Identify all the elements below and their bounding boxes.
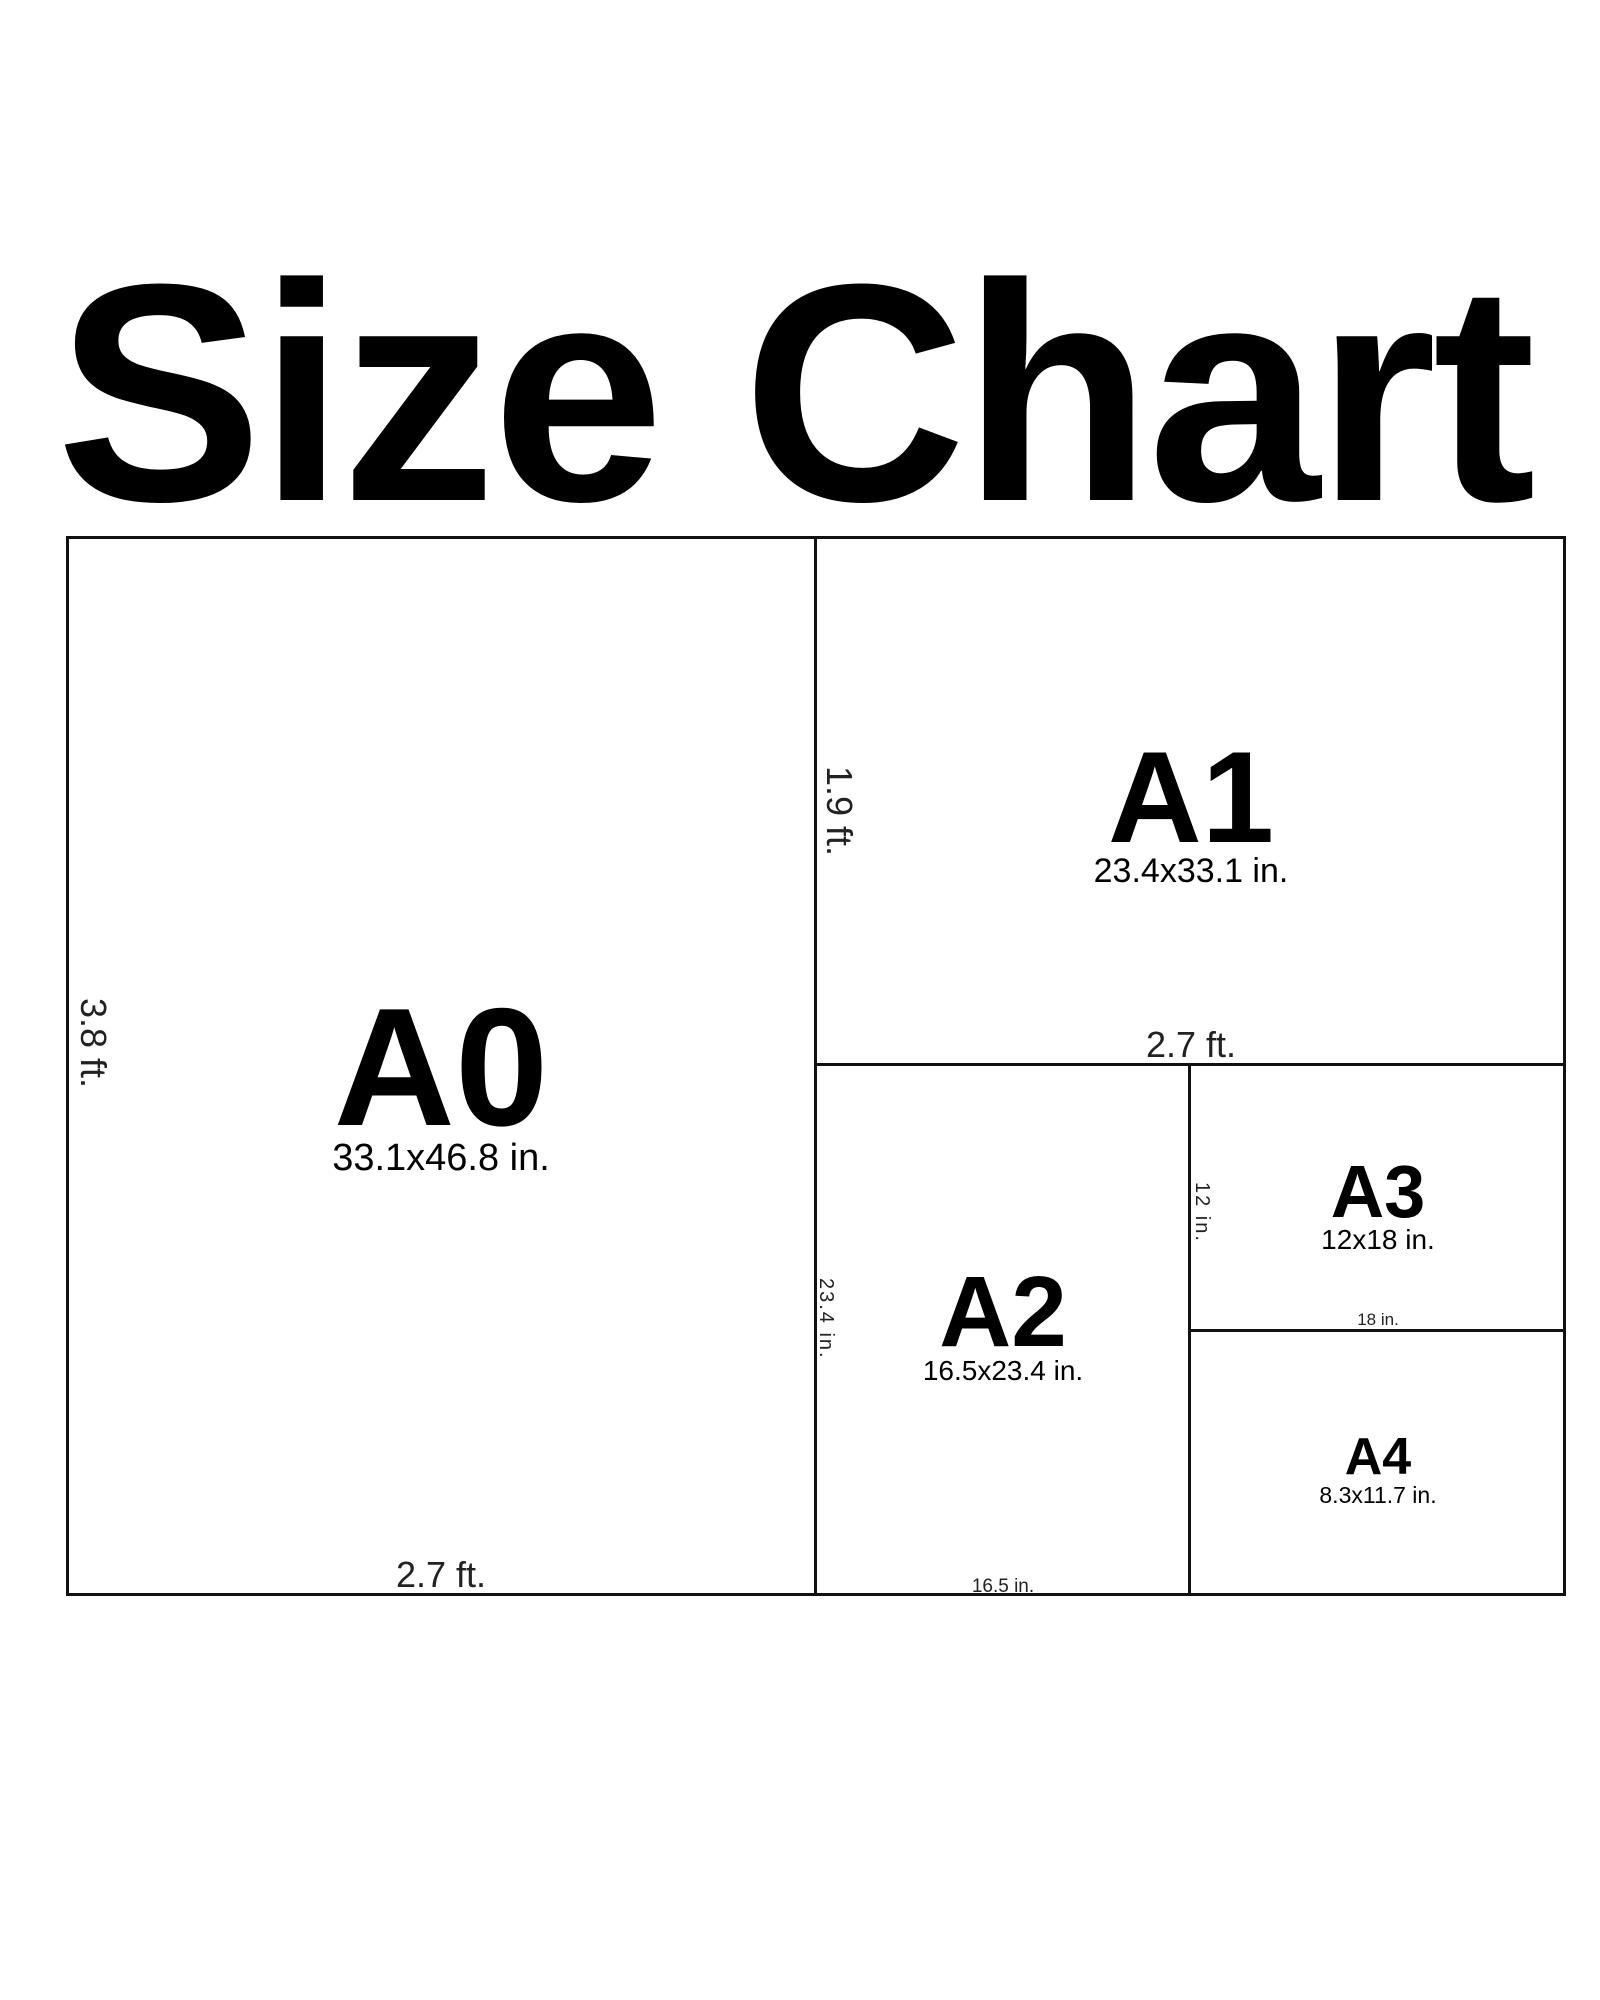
paper-label-a1: A1 23.4x33.1 in.: [816, 745, 1566, 891]
paper-a1-dimensions: 23.4x33.1 in.: [816, 852, 1566, 891]
paper-a4-name: A4: [1190, 1437, 1566, 1479]
size-chart-page: Size Chart A0 33.1x46.8 in. A1 23.4x33.1…: [0, 0, 1600, 2000]
paper-label-a3: A3 12x18 in.: [1190, 1162, 1566, 1256]
a2-height-label: 23.4 in.: [814, 1278, 837, 1360]
a3-width-label: 18 in.: [1190, 1310, 1566, 1330]
paper-a2-name: A2: [816, 1272, 1190, 1352]
a1-height-label: 1.9 ft.: [818, 766, 860, 856]
page-title: Size Chart: [56, 238, 1600, 548]
paper-label-a2: A2 16.5x23.4 in.: [816, 1272, 1190, 1387]
a3-height-label: 12 in.: [1190, 1182, 1213, 1243]
paper-label-a0: A0 33.1x46.8 in.: [66, 1000, 816, 1181]
paper-a3-dimensions: 12x18 in.: [1190, 1224, 1566, 1256]
a1-width-label: 2.7 ft.: [816, 1024, 1566, 1066]
a2-width-label: 16.5 in.: [816, 1576, 1190, 1598]
paper-a4-dimensions: 8.3x11.7 in.: [1190, 1482, 1566, 1508]
paper-a0-dimensions: 33.1x46.8 in.: [66, 1137, 816, 1181]
paper-a2-dimensions: 16.5x23.4 in.: [816, 1355, 1190, 1387]
a0-width-label: 2.7 ft.: [66, 1554, 816, 1596]
paper-a3-name: A3: [1190, 1162, 1566, 1221]
paper-label-a4: A4 8.3x11.7 in.: [1190, 1437, 1566, 1508]
paper-a0-name: A0: [66, 1000, 816, 1134]
paper-a1-name: A1: [816, 745, 1566, 849]
a0-height-label: 3.8 ft.: [72, 998, 114, 1088]
